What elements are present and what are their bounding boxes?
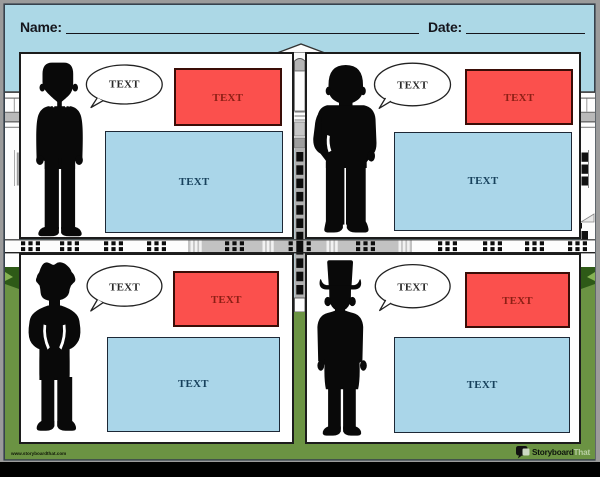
svg-text:That: That: [573, 448, 590, 457]
svg-text:TEXT: TEXT: [109, 79, 140, 91]
svg-text:TEXT: TEXT: [397, 281, 428, 293]
svg-text:TEXT: TEXT: [397, 79, 428, 91]
svg-text:Storyboard: Storyboard: [532, 448, 574, 457]
svg-text:TEXT: TEXT: [109, 281, 140, 293]
